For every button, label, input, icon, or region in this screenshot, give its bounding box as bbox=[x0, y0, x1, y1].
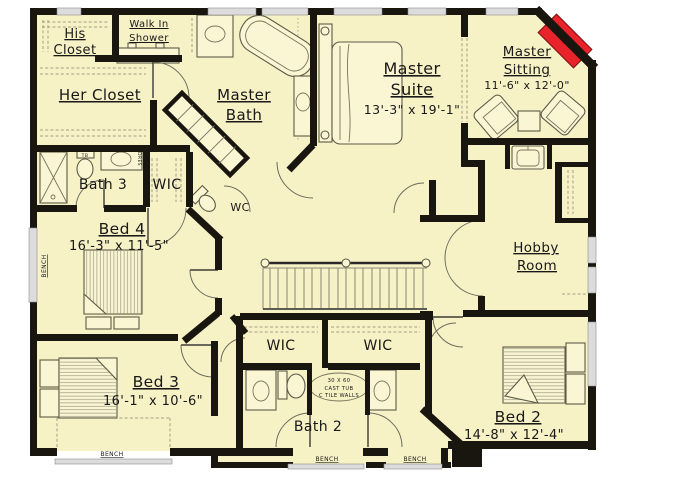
label-master-bath-2: Bath bbox=[226, 106, 262, 124]
label-her-closet: Her Closet bbox=[59, 86, 141, 104]
label-bed-2: Bed 2 bbox=[495, 408, 542, 426]
label-bed-4-dims: 16'-3" x 11'-5" bbox=[69, 239, 169, 254]
label-wic-right: WIC bbox=[364, 338, 393, 354]
label-bed-2-dims: 14'-8" x 12'-4" bbox=[464, 428, 564, 443]
label-master-bath: Master bbox=[217, 86, 271, 104]
label-master-sitting: Master bbox=[503, 44, 552, 60]
label-master-suite-2: Suite bbox=[391, 80, 434, 99]
label-master-sitting-dims: 11'-6" x 12'-0" bbox=[484, 79, 570, 92]
label-bed-4: Bed 4 bbox=[99, 220, 146, 238]
label-hobby-room-2: Room bbox=[517, 258, 557, 274]
label-walk-in-shower: Walk In bbox=[129, 19, 168, 30]
label-bath-2: Bath 2 bbox=[294, 419, 342, 435]
label-his-closet-2: Closet bbox=[54, 43, 97, 58]
label-tub-walls: C TILE WALLS bbox=[319, 393, 359, 399]
sitting-table bbox=[518, 111, 540, 131]
label-bed-3: Bed 3 bbox=[133, 373, 180, 391]
label-hobby-room: Hobby bbox=[513, 240, 559, 256]
label-master-suite: Master bbox=[383, 59, 440, 78]
master-bath-vanity-top bbox=[197, 15, 233, 57]
label-master-suite-dims: 13'-3" x 19'-1" bbox=[364, 102, 460, 117]
master-bed bbox=[319, 24, 402, 144]
label-bath-3: Bath 3 bbox=[79, 177, 127, 193]
floor-plan-drawing: His Closet Walk In Shower Her Closet Mas… bbox=[0, 0, 700, 489]
label-wic-hall: WIC bbox=[153, 177, 182, 193]
bath3-shower bbox=[40, 152, 67, 203]
label-bench-bay-left: BENCH bbox=[315, 456, 338, 463]
label-dres: DRES bbox=[136, 152, 142, 166]
label-his-closet: His bbox=[64, 27, 85, 42]
label-wic-left: WIC bbox=[267, 338, 296, 354]
label-tub-size: 30 X 60 bbox=[328, 378, 351, 384]
bed2-bed bbox=[503, 343, 585, 404]
label-bed-3-dims: 16'-1" x 10'-6" bbox=[103, 394, 203, 409]
floor-plan-canvas: His Closet Walk In Shower Her Closet Mas… bbox=[0, 0, 700, 489]
label-walk-in-shower-2: Shower bbox=[129, 33, 169, 44]
label-tb: TB bbox=[81, 153, 89, 159]
label-wc: WC bbox=[230, 201, 249, 214]
label-bench-bay-right: BENCH bbox=[403, 456, 426, 463]
label-master-sitting-2: Sitting bbox=[504, 62, 551, 78]
label-bench-bed3: BENCH bbox=[100, 451, 123, 458]
label-bench-bed4: BENCH bbox=[41, 254, 48, 277]
wet-bar-sink bbox=[512, 146, 544, 169]
label-tub-type: CAST TUB bbox=[324, 386, 353, 392]
